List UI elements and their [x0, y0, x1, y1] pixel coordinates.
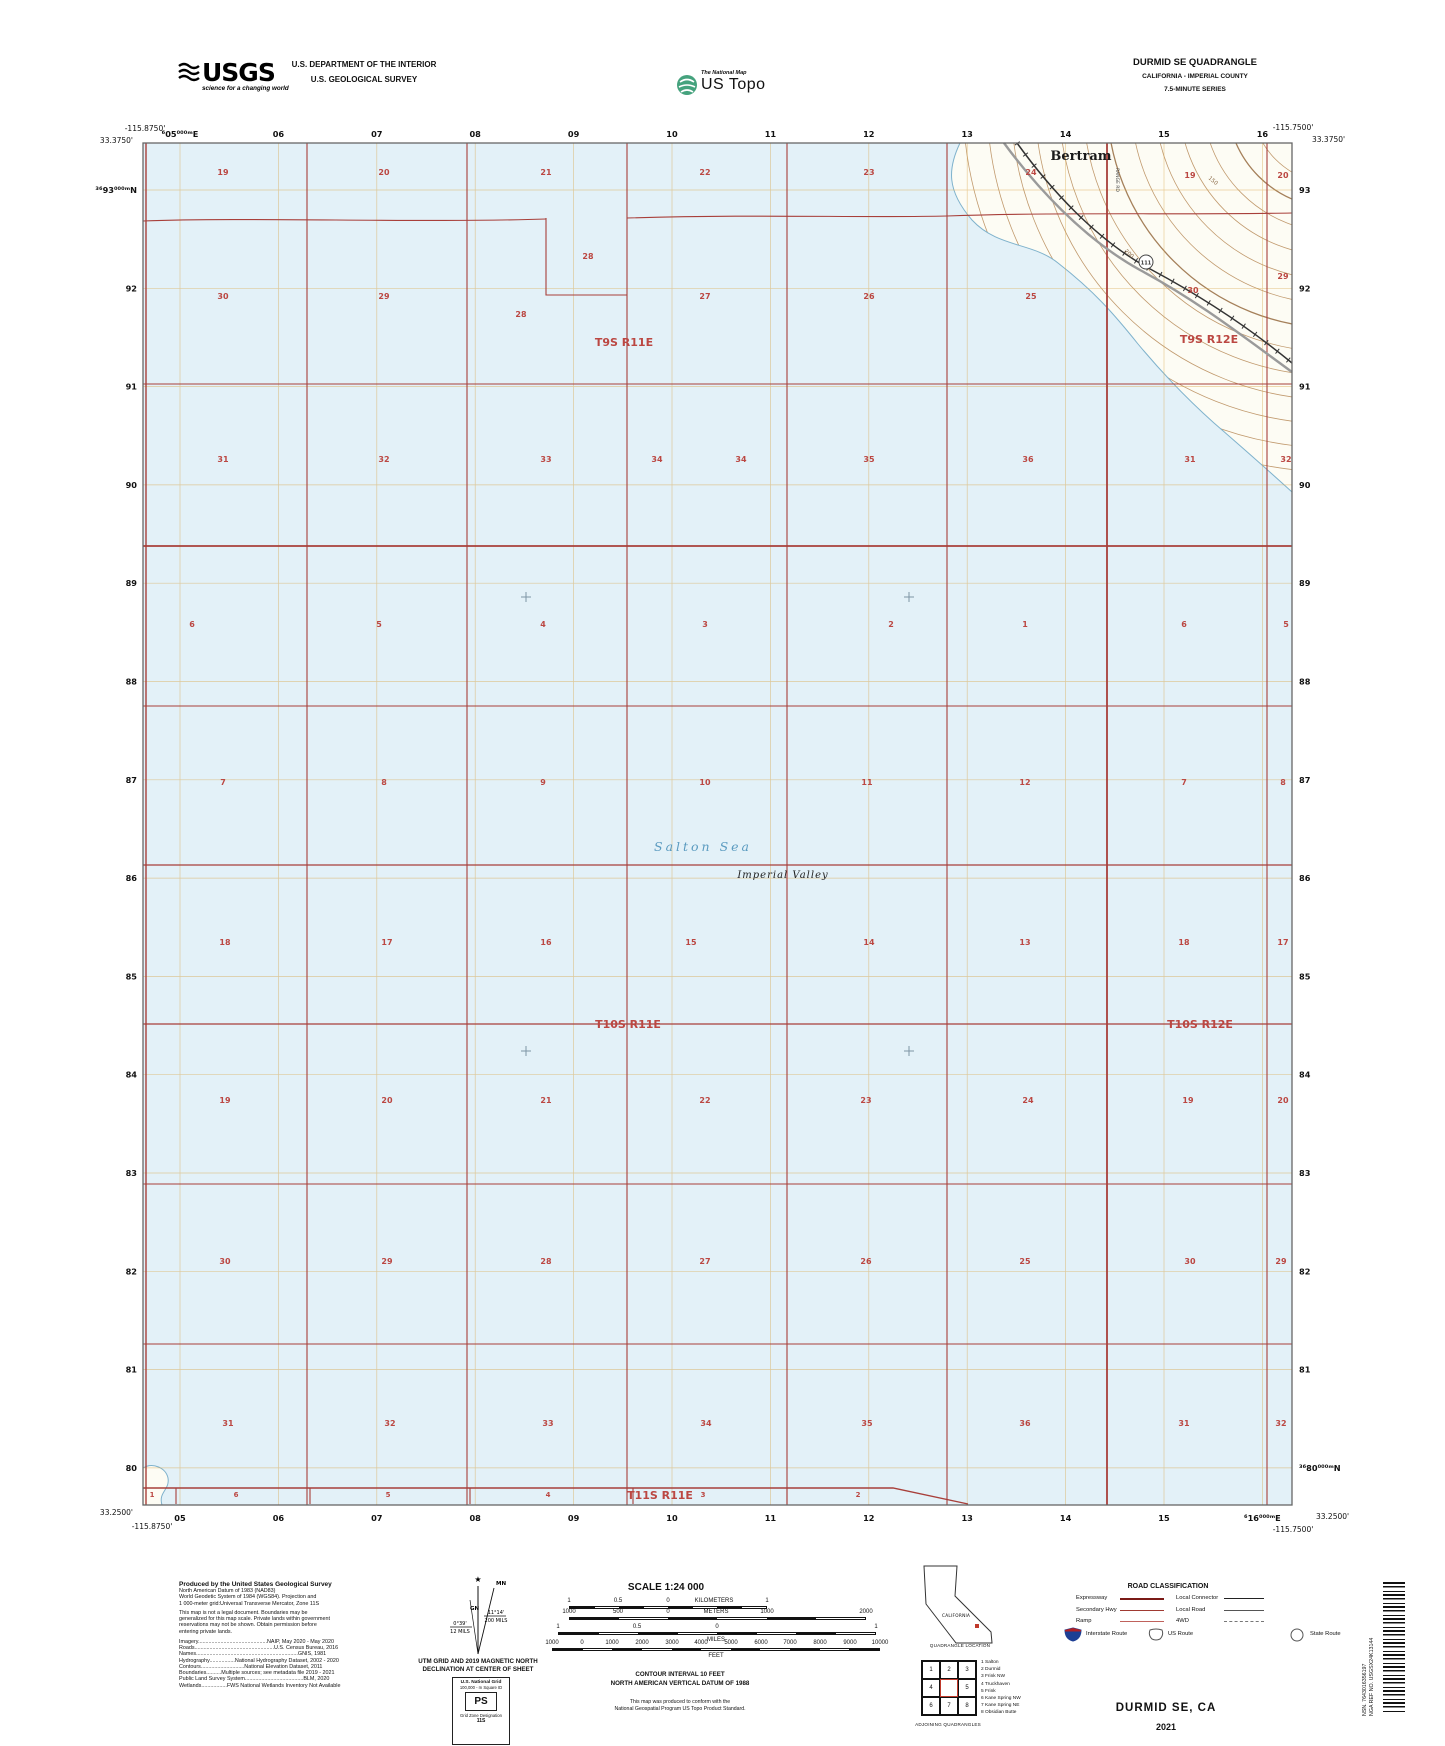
section-number: 4 [546, 1491, 551, 1499]
grid-label-left: 91 [126, 382, 138, 392]
grid-label-left: 84 [126, 1070, 138, 1080]
grid-label-top: 12 [863, 129, 874, 139]
scale-label: 1 [874, 1624, 877, 1630]
sheet-title: DURMID SE, CA [1116, 1702, 1217, 1714]
gn-label: GN [470, 1606, 480, 1612]
section-number: 32 [384, 1419, 395, 1428]
section-number: 10 [699, 778, 711, 787]
section-number: 16 [540, 938, 552, 947]
scale-label: 5000 [724, 1640, 737, 1646]
grid-label-bottom: 14 [1060, 1513, 1072, 1523]
scale-label: 0 [715, 1624, 718, 1630]
section-number: 29 [1275, 1257, 1287, 1266]
legend-state-route: State Route [1310, 1631, 1341, 1637]
svg-text:111: 111 [1141, 261, 1152, 267]
section-number: 33 [542, 1419, 553, 1428]
section-number: 30 [219, 1257, 231, 1266]
declination-caption-2: DECLINATION AT CENTER OF SHEET [423, 1666, 534, 1673]
grid-label-left: 81 [126, 1365, 138, 1375]
section-number: 34 [735, 455, 747, 464]
section-number: 25 [1019, 1257, 1031, 1266]
production-credits: Produced by the United States Geological… [179, 1581, 459, 1689]
scale-bar [558, 1632, 876, 1635]
grid-label-bottom: 09 [568, 1513, 580, 1523]
grid-label-bottom: 10 [666, 1513, 678, 1523]
section-number: 15 [685, 938, 697, 947]
adjoining-quadrangles-grid: 12345678 [921, 1660, 977, 1716]
grid-label-right: 86 [1299, 873, 1311, 883]
township-label: T11S R11E [627, 1489, 693, 1502]
vertical-datum-note: NORTH AMERICAN VERTICAL DATUM OF 1988 [611, 1680, 750, 1687]
scale-label: 1000 [562, 1609, 575, 1615]
legend-expressway: Expressway [1076, 1595, 1107, 1601]
grid-label-bottom: ⁶16⁰⁰⁰ᵐE [1244, 1513, 1281, 1523]
svg-text:12 MILS: 12 MILS [450, 1629, 470, 1635]
section-number: 22 [699, 168, 710, 177]
legend-local-road: Local Road [1176, 1607, 1205, 1613]
section-number: 31 [1184, 455, 1196, 464]
section-number: 3 [701, 1491, 706, 1499]
section-number: 24 [1025, 168, 1037, 177]
section-number: 18 [219, 938, 231, 947]
grid-label-left: 88 [126, 677, 138, 687]
secondary-line [1120, 1610, 1164, 1611]
section-number: 32 [1280, 455, 1291, 464]
grid-label-top: 10 [666, 129, 678, 139]
adjoining-name: 8 Obsidian Butte [981, 1709, 1021, 1716]
adjoining-cell: 7 [940, 1697, 958, 1715]
section-number: 12 [1019, 778, 1030, 787]
adjoining-cell: 6 [922, 1697, 940, 1715]
grid-label-left: 89 [126, 578, 138, 588]
scale-label: 3000 [665, 1640, 678, 1646]
credit-line: Wetlands.................FWS National We… [179, 1683, 459, 1689]
grid-label-right: 92 [1299, 283, 1310, 293]
section-number: 20 [378, 168, 390, 177]
usng-square-id: PS [465, 1692, 497, 1711]
adjoining-quadrangles-caption: ADJOINING QUADRANGLES [915, 1722, 981, 1727]
contour-interval-note: CONTOUR INTERVAL 10 FEET [635, 1671, 724, 1678]
adjoining-cell: 5 [958, 1679, 976, 1697]
sheet-year: 2021 [1156, 1722, 1176, 1732]
road-classification-title: ROAD CLASSIFICATION [1128, 1583, 1209, 1590]
svg-text:★: ★ [474, 1575, 481, 1584]
section-number: 7 [1181, 778, 1187, 787]
adjoining-name: 1 Salton [981, 1659, 1021, 1666]
state-location-map: CALIFORNIA [916, 1560, 1000, 1644]
scale-label: 1 [567, 1598, 570, 1604]
adjoining-name: 5 Frink [981, 1688, 1021, 1695]
section-number: 5 [1283, 620, 1289, 629]
scale-label: METERS [703, 1609, 728, 1615]
place-label-imperial-valley: Imperial Valley [736, 870, 828, 881]
adjoining-name: 3 Frink NW [981, 1673, 1021, 1680]
scale-label: 0.5 [614, 1598, 622, 1604]
section-number: 32 [378, 455, 389, 464]
section-number: 4 [540, 620, 546, 629]
section-number: 19 [217, 168, 229, 177]
adjoining-cell [940, 1679, 958, 1697]
mn-label: MN [496, 1581, 506, 1587]
section-number: 31 [217, 455, 229, 464]
credit-line: Produced by the United States Geological… [179, 1581, 459, 1588]
adjoining-cell: 3 [958, 1661, 976, 1679]
scale-label: 0 [666, 1609, 669, 1615]
grid-label-left: 85 [126, 971, 138, 981]
scale-title: SCALE 1:24 000 [628, 1582, 704, 1593]
usng-box: U.S. National Grid 100,000 - m Square ID… [452, 1677, 510, 1745]
corner-br-lon: -115.7500' [1273, 1525, 1314, 1534]
scale-label: 10000 [872, 1640, 889, 1646]
scale-label: 0.5 [633, 1624, 641, 1630]
section-number: 21 [540, 168, 552, 177]
grid-label-left: 83 [126, 1168, 138, 1178]
grid-label-right: 90 [1299, 480, 1311, 490]
section-number: 3 [702, 620, 708, 629]
section-number: 9 [540, 778, 546, 787]
grid-label-right: 81 [1299, 1365, 1311, 1375]
section-number: 35 [861, 1419, 873, 1428]
section-number: 34 [700, 1419, 712, 1428]
quadrangle-location-caption: QUADRANGLE LOCATION [930, 1643, 990, 1648]
section-number: 29 [378, 292, 390, 301]
section-number: 36 [1019, 1419, 1031, 1428]
township-label: T10S R12E [1167, 1018, 1233, 1031]
barcode-text: NSN. 7643016356197 NGA REF NO. USGSX24K1… [1362, 1576, 1376, 1716]
section-number: 26 [860, 1257, 872, 1266]
scale-label: KILOMETERS [695, 1598, 734, 1604]
scale-bar [569, 1617, 866, 1620]
expressway-line [1120, 1598, 1164, 1600]
grid-label-top: 16 [1257, 129, 1269, 139]
grid-label-bottom: 13 [961, 1513, 973, 1523]
corner-tl-lon: -115.8750' [125, 124, 166, 133]
section-number: 28 [540, 1257, 552, 1266]
section-number: 21 [540, 1096, 552, 1105]
scale-label: 8000 [813, 1640, 826, 1646]
grid-label-right: 83 [1299, 1168, 1311, 1178]
legend-ramp: Ramp [1076, 1618, 1091, 1624]
us-route-shield-icon [1148, 1628, 1164, 1641]
grid-label-top: 07 [371, 129, 383, 139]
section-number: 25 [1025, 292, 1037, 301]
svg-text:11°14': 11°14' [488, 1610, 505, 1616]
corner-bl-lon: -115.8750' [132, 1522, 173, 1531]
interstate-shield-icon [1064, 1627, 1082, 1642]
legend-interstate: Interstate Route [1086, 1631, 1127, 1637]
corner-tr-lat: 33.3750' [1312, 135, 1345, 144]
township-label: T9S R12E [1180, 333, 1238, 346]
section-number: 14 [863, 938, 875, 947]
legend-4wd: 4WD [1176, 1618, 1189, 1624]
adjoining-name: 7 Kane Spring NE [981, 1702, 1021, 1709]
corner-tr-lon: -115.7500' [1273, 123, 1314, 132]
grid-label-top: 15 [1158, 129, 1170, 139]
section-number: 32 [1275, 1419, 1286, 1428]
scale-label: 1000 [605, 1640, 618, 1646]
section-number: 5 [376, 620, 382, 629]
grid-label-right: 85 [1299, 971, 1311, 981]
section-number: 19 [219, 1096, 231, 1105]
section-number: 36 [1022, 455, 1034, 464]
scale-label: MILES [707, 1637, 725, 1643]
section-number: 17 [1277, 938, 1288, 947]
grid-label-left: 82 [126, 1266, 137, 1276]
scale-label: 1 [765, 1598, 768, 1604]
section-number: 27 [699, 292, 710, 301]
barcode [1383, 1582, 1405, 1714]
corner-br-lat: 33.2500' [1316, 1512, 1349, 1521]
section-number: 29 [1277, 272, 1289, 281]
grid-label-right: ³⁶80⁰⁰⁰ᵐN [1299, 1463, 1341, 1473]
scale-label: 2000 [859, 1609, 872, 1615]
section-number: 28 [582, 252, 594, 261]
section-number: 31 [1178, 1419, 1190, 1428]
grid-label-left: 86 [126, 873, 138, 883]
grid-label-left: 80 [126, 1463, 138, 1473]
adjoining-name: 6 Kane Spring NW [981, 1695, 1021, 1702]
section-number: 1 [1022, 620, 1028, 629]
adjoining-name: 4 Truckhaven [981, 1681, 1021, 1688]
section-number: 5 [386, 1491, 391, 1499]
section-number: 2 [888, 620, 894, 629]
standard-note-2: National Geospatial Program US Topo Prod… [614, 1706, 745, 1712]
scale-label: 500 [613, 1609, 623, 1615]
section-number: 33 [540, 455, 551, 464]
section-number: 11 [861, 778, 873, 787]
legend-us-route: US Route [1168, 1631, 1193, 1637]
scale-label: 1000 [760, 1609, 773, 1615]
grid-label-right: 89 [1299, 578, 1311, 588]
section-number: 1 [150, 1491, 155, 1499]
section-number: 31 [222, 1419, 234, 1428]
scale-label: 1 [556, 1624, 559, 1630]
scale-label: 0 [580, 1640, 583, 1646]
adjoining-cell: 4 [922, 1679, 940, 1697]
declination-diagram: ★ MN GN 0°39' 12 MILS 11°14' 200 MILS [420, 1572, 536, 1664]
ramp-line [1120, 1621, 1164, 1622]
scale-bar [552, 1648, 880, 1651]
section-number: 8 [1280, 778, 1286, 787]
section-number: 19 [1182, 1096, 1194, 1105]
section-number: 20 [1277, 1096, 1289, 1105]
scale-label: 2000 [635, 1640, 648, 1646]
grid-label-right: 88 [1299, 677, 1311, 687]
grid-label-bottom: 12 [863, 1513, 874, 1523]
section-number: 30 [1187, 286, 1199, 295]
section-number: 7 [220, 778, 226, 787]
adjoining-quadrangles-list: 1 Salton2 Durmid3 Frink NW4 Truckhaven5 … [981, 1659, 1021, 1717]
township-label: T10S R11E [595, 1018, 661, 1031]
adjoining-cell: 2 [940, 1661, 958, 1679]
section-number: 2 [856, 1491, 861, 1499]
grid-label-right: 87 [1299, 775, 1311, 785]
local-road-line [1224, 1610, 1264, 1611]
us-topo-sheet: USGS science for a changing world U.S. D… [0, 0, 1445, 1746]
grid-label-top: 08 [469, 129, 481, 139]
section-number: 26 [863, 292, 875, 301]
scale-label: 7000 [783, 1640, 796, 1646]
grid-label-bottom: 06 [273, 1513, 285, 1523]
section-number: 30 [217, 292, 229, 301]
section-number: 30 [1184, 1257, 1196, 1266]
grid-label-top: 06 [273, 129, 285, 139]
section-number: 34 [651, 455, 663, 464]
scale-label: 0 [666, 1598, 669, 1604]
section-number: 23 [863, 168, 874, 177]
scale-label: 1000 [545, 1640, 558, 1646]
salton-sea-water [143, 143, 1292, 1505]
section-number: 28 [515, 310, 527, 319]
grid-label-top: ⁶05⁰⁰⁰ᵐE [162, 129, 199, 139]
grid-label-bottom: 08 [469, 1513, 481, 1523]
section-number: 19 [1184, 171, 1196, 180]
section-number: 27 [699, 1257, 710, 1266]
corner-tl-lat: 33.3750' [100, 136, 133, 145]
section-number: 6 [1181, 620, 1187, 629]
place-label-bertram: Bertram [1050, 149, 1111, 164]
grid-label-left: 92 [126, 283, 137, 293]
grid-label-right: 84 [1299, 1070, 1311, 1080]
grid-label-right: 93 [1299, 185, 1311, 195]
grid-label-left: 87 [126, 775, 138, 785]
section-number: 18 [1178, 938, 1190, 947]
grid-label-top: 14 [1060, 129, 1072, 139]
grid-label-right: 91 [1299, 382, 1311, 392]
scale-label: FEET [708, 1653, 723, 1659]
section-number: 6 [189, 620, 195, 629]
svg-text:200 MILS: 200 MILS [485, 1618, 508, 1624]
section-number: 17 [381, 938, 392, 947]
grid-label-left: ³⁶93⁰⁰⁰ᵐN [95, 185, 137, 195]
section-number: 22 [699, 1096, 710, 1105]
standard-note-1: This map was produced to conform with th… [630, 1699, 730, 1705]
grid-label-top: 13 [961, 129, 973, 139]
svg-text:0°39': 0°39' [453, 1621, 466, 1627]
grid-label-bottom: 07 [371, 1513, 383, 1523]
section-number: 6 [234, 1491, 239, 1499]
section-number: 29 [381, 1257, 393, 1266]
section-number: 20 [1277, 171, 1289, 180]
corner-bl-lat: 33.2500' [100, 1508, 133, 1517]
quad-location-marker [975, 1624, 979, 1628]
section-number: 23 [860, 1096, 871, 1105]
section-number: 35 [863, 455, 875, 464]
grid-label-left: 90 [126, 480, 138, 490]
place-label-salton-sea: Salton Sea [654, 839, 752, 854]
section-number: 8 [381, 778, 387, 787]
scale-label: 9000 [843, 1640, 856, 1646]
grid-label-top: 09 [568, 129, 580, 139]
grid-label-bottom: 05 [174, 1513, 186, 1523]
adjoining-cell: 8 [958, 1697, 976, 1715]
section-number: 20 [381, 1096, 393, 1105]
scale-label: 4000 [694, 1640, 707, 1646]
grid-label-bottom: 11 [765, 1513, 777, 1523]
grid-label-right: 82 [1299, 1266, 1310, 1276]
map-canvas: 111 Bertram Salton Sea Imperial Valley R… [0, 0, 1445, 1746]
grid-label-bottom: 15 [1158, 1513, 1170, 1523]
route-111-shield: 111 [1139, 255, 1153, 269]
adjoining-name: 2 Durmid [981, 1666, 1021, 1673]
state-route-shield-icon [1290, 1628, 1304, 1642]
legend-secondary: Secondary Hwy [1076, 1607, 1117, 1613]
adjoining-cell: 1 [922, 1661, 940, 1679]
section-number: 13 [1019, 938, 1030, 947]
place-label-range-rd: RANGE RD [1114, 168, 1120, 192]
state-label: CALIFORNIA [942, 1613, 970, 1618]
scale-label: 6000 [754, 1640, 767, 1646]
fourwd-line [1224, 1621, 1264, 1622]
declination-caption-1: UTM GRID AND 2019 MAGNETIC NORTH [418, 1658, 537, 1665]
section-number: 24 [1022, 1096, 1034, 1105]
local-connector-line [1224, 1598, 1264, 1599]
grid-label-top: 11 [765, 129, 777, 139]
legend-local-connector: Local Connector [1176, 1595, 1218, 1601]
township-label: T9S R11E [595, 336, 653, 349]
